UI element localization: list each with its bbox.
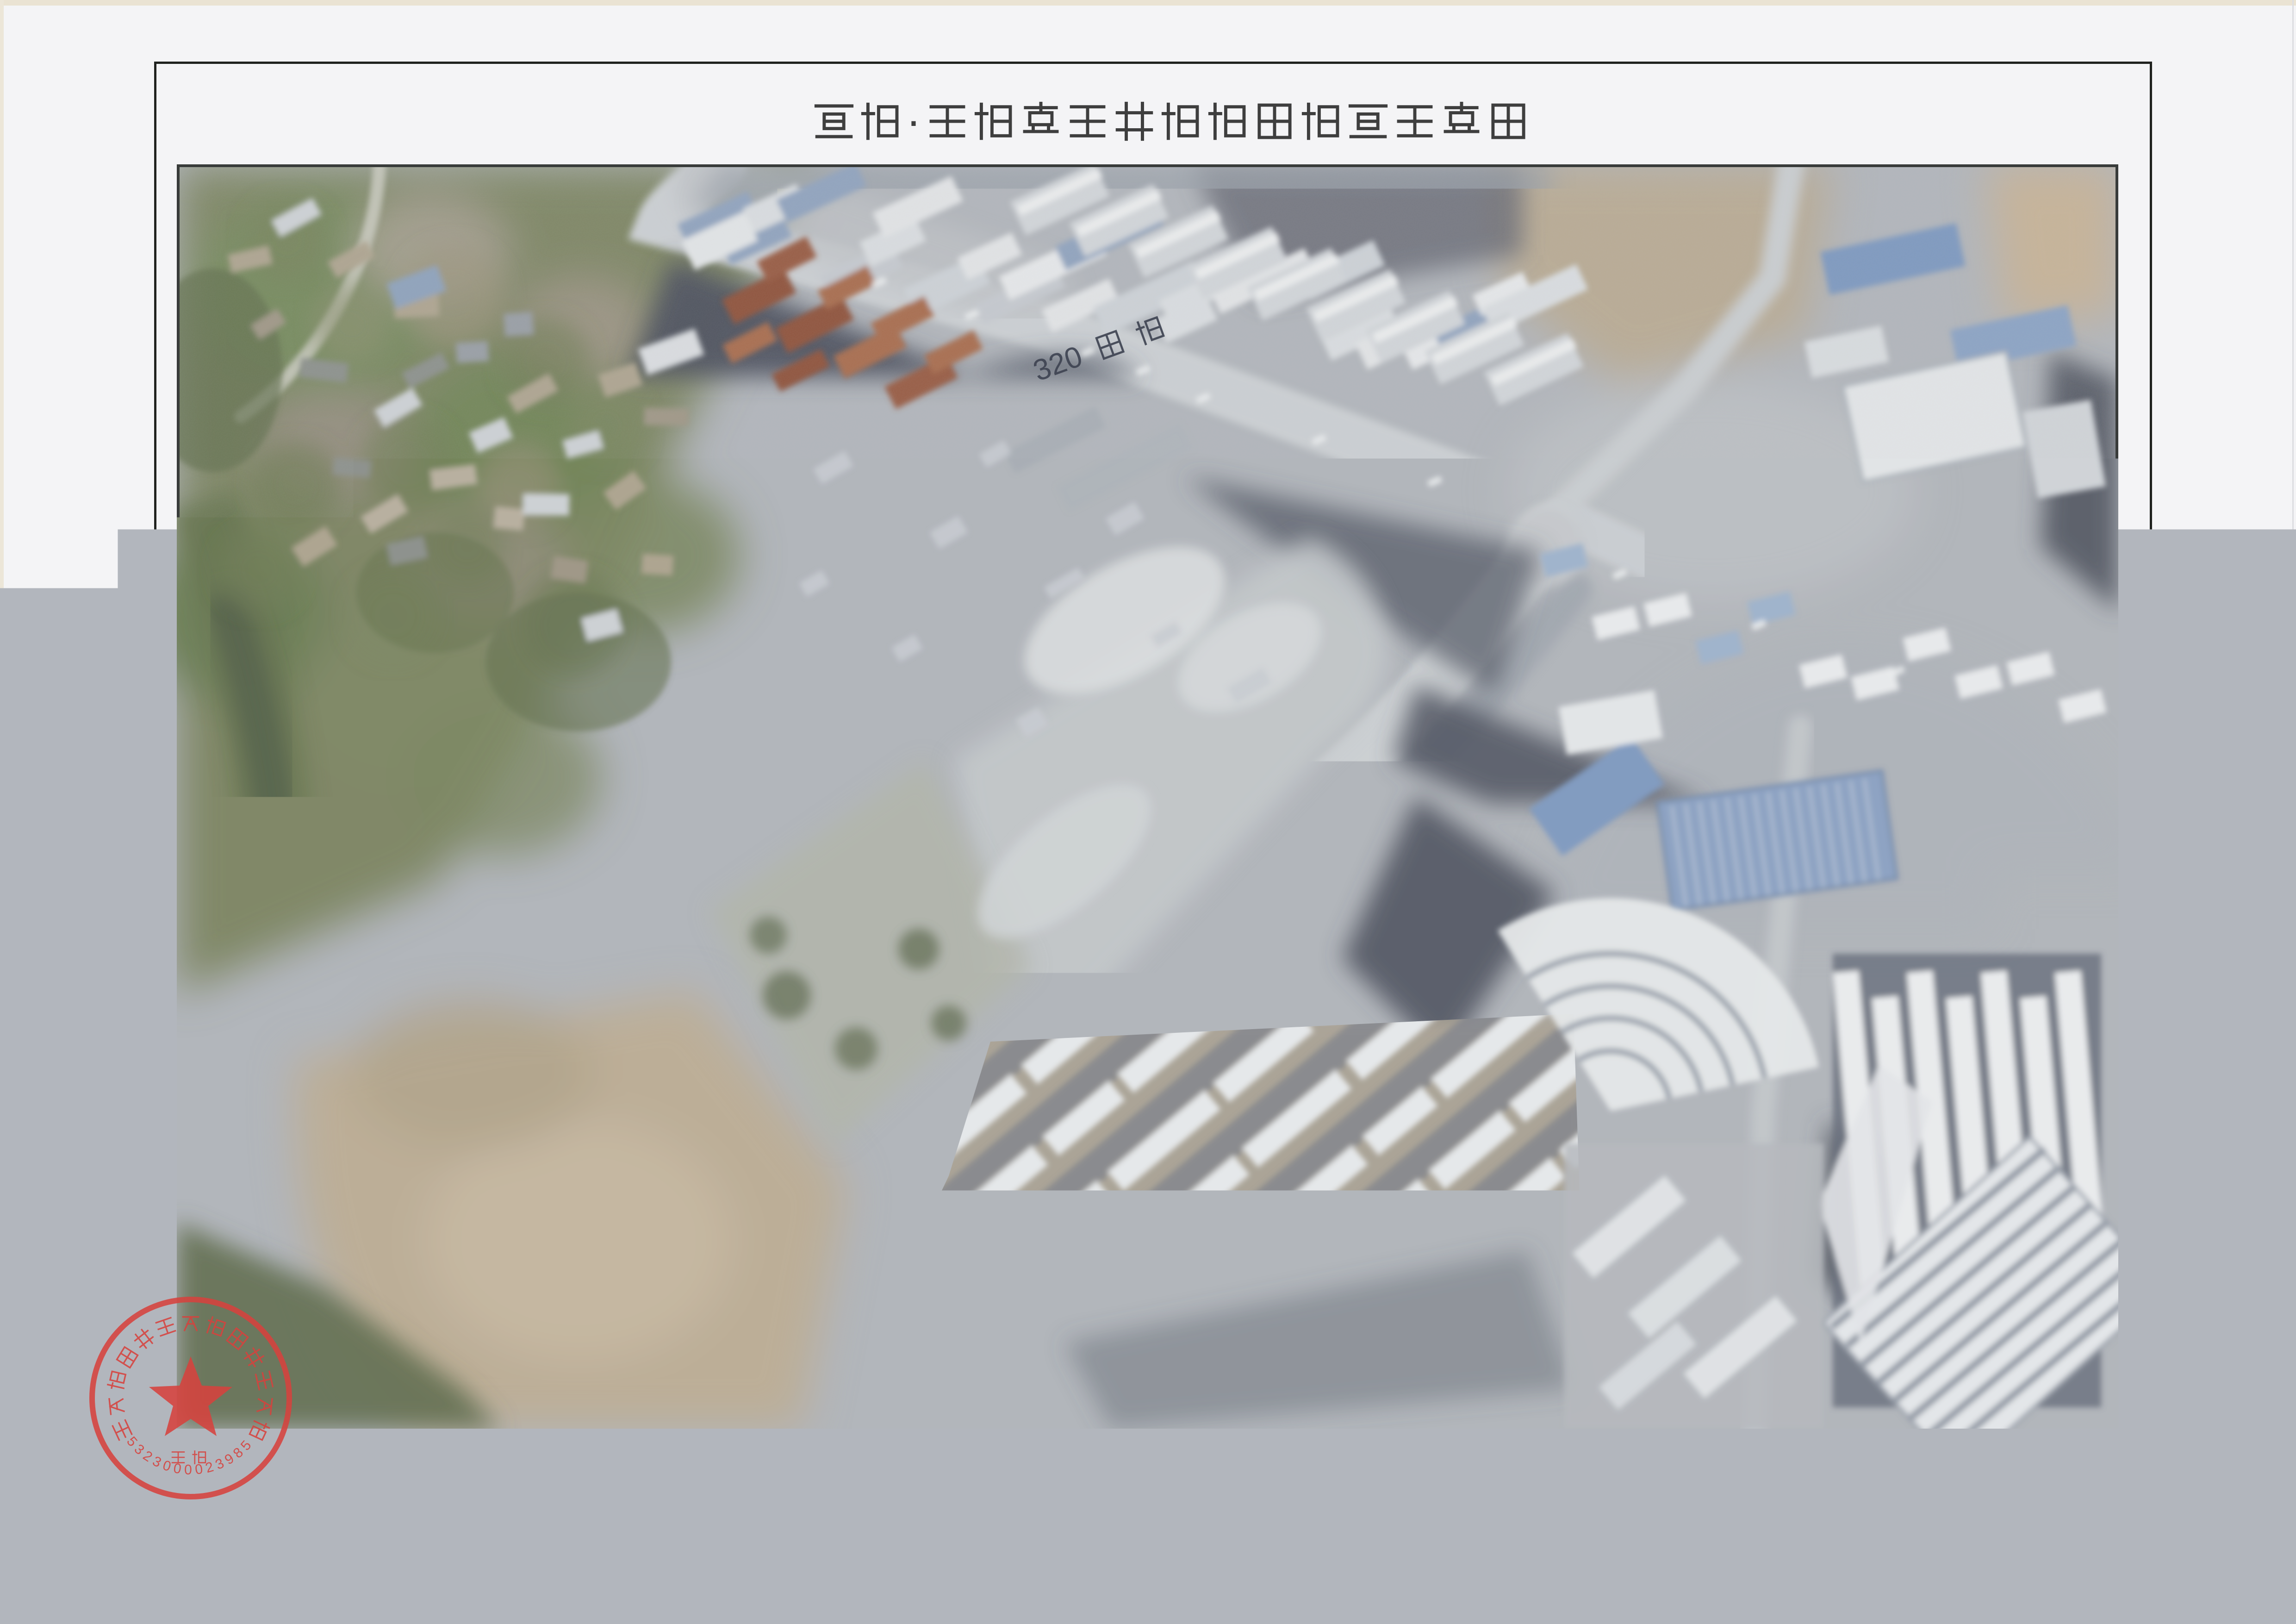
svg-text:): ) [577, 722, 586, 754]
svg-text::: : [284, 1552, 292, 1584]
svg-text:23: 23 [450, 1508, 482, 1540]
svg-text:·: · [906, 96, 921, 145]
svg-text:4: 4 [401, 1552, 417, 1584]
svg-text:2023: 2023 [305, 1508, 368, 1540]
svg-text:): ) [905, 564, 917, 606]
svg-text::: : [2038, 1508, 2046, 1540]
svg-text:24: 24 [450, 1552, 482, 1584]
svg-text:(B: (B [828, 564, 865, 606]
svg-text:4: 4 [401, 1508, 417, 1540]
svg-text:5323000023985: 5323000023985 [124, 1434, 257, 1478]
svg-text::: : [284, 1508, 292, 1540]
svg-text:(A: (A [517, 722, 547, 754]
svg-text:2023: 2023 [305, 1552, 368, 1584]
svg-text:·: · [658, 564, 670, 606]
svg-text:·: · [386, 722, 396, 754]
svg-text::: : [2038, 1552, 2046, 1584]
